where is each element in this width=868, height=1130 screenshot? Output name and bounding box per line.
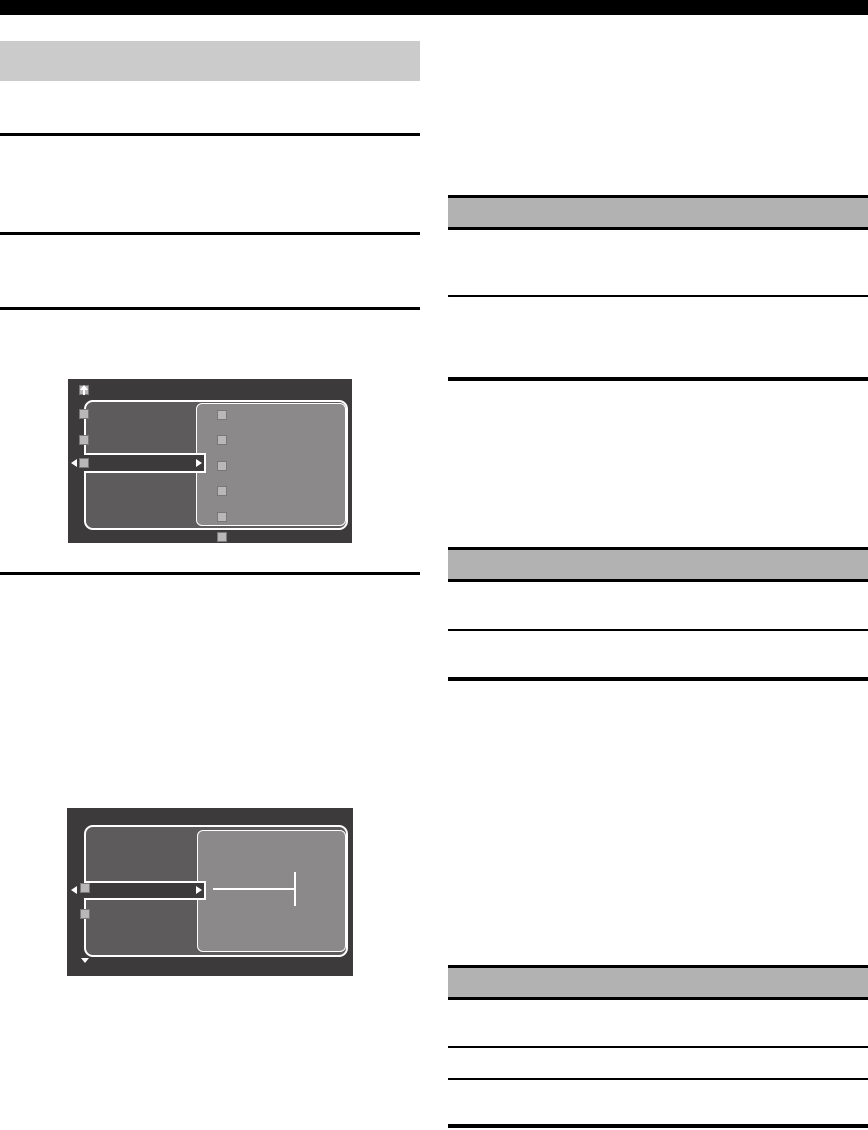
left-rule bbox=[0, 232, 420, 235]
left-rule bbox=[0, 133, 420, 136]
selected-menu-row bbox=[84, 881, 206, 900]
menu-item-placeholder bbox=[79, 409, 89, 419]
right-rule bbox=[448, 629, 868, 631]
submenu-item-placeholder bbox=[217, 435, 227, 445]
right-rule bbox=[448, 1078, 868, 1080]
submenu-item-placeholder bbox=[217, 461, 227, 471]
submenu-item-placeholder bbox=[217, 512, 227, 522]
slider-track bbox=[213, 888, 294, 890]
right-arrow-icon bbox=[196, 459, 202, 467]
submenu-item-placeholder bbox=[217, 486, 227, 496]
left-arrow-icon bbox=[71, 459, 77, 467]
menu-item-placeholder bbox=[79, 458, 89, 468]
left-section-header-bar bbox=[0, 41, 420, 81]
right-rule bbox=[448, 1124, 868, 1128]
bottom-hint-placeholder bbox=[217, 532, 227, 542]
left-rule bbox=[0, 572, 420, 575]
right-arrow-icon bbox=[196, 886, 202, 894]
right-rule bbox=[448, 377, 868, 381]
osd-menu-adjust-figure bbox=[67, 808, 353, 976]
right-section-header-bar bbox=[448, 965, 868, 1000]
right-rule bbox=[448, 1046, 868, 1048]
menu-item-placeholder bbox=[80, 883, 90, 893]
left-rule bbox=[0, 307, 420, 310]
right-rule bbox=[448, 295, 868, 297]
down-arrow-icon bbox=[81, 958, 89, 963]
menu-right-panel bbox=[197, 830, 346, 952]
selected-menu-row bbox=[84, 453, 206, 473]
up-arrow-stem bbox=[83, 390, 85, 395]
right-rule bbox=[448, 677, 868, 681]
osd-menu-list-figure bbox=[68, 379, 352, 543]
top-black-band bbox=[0, 0, 868, 15]
menu-item-placeholder bbox=[79, 435, 89, 445]
submenu-item-placeholder bbox=[217, 410, 227, 420]
menu-item-placeholder bbox=[80, 909, 90, 919]
left-arrow-icon bbox=[71, 886, 77, 894]
slider-cursor bbox=[294, 872, 296, 906]
right-section-header-bar bbox=[448, 547, 868, 582]
right-section-header-bar bbox=[448, 195, 868, 230]
manual-page bbox=[0, 0, 868, 1130]
